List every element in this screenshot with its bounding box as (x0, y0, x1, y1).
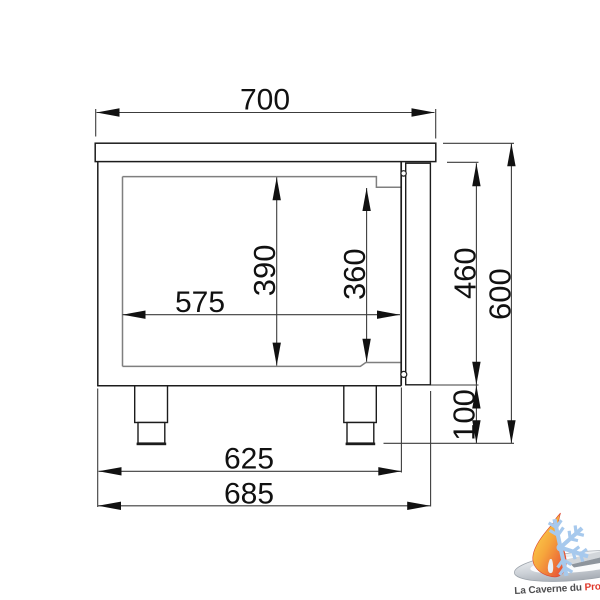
svg-text:600: 600 (483, 268, 518, 320)
svg-text:700: 700 (240, 84, 290, 117)
svg-text:100: 100 (447, 389, 482, 441)
svg-text:390: 390 (247, 245, 282, 297)
svg-text:575: 575 (175, 286, 225, 319)
svg-text:625: 625 (224, 443, 274, 476)
svg-text:685: 685 (224, 478, 274, 511)
svg-text:360: 360 (337, 248, 372, 300)
svg-text:460: 460 (448, 247, 483, 299)
